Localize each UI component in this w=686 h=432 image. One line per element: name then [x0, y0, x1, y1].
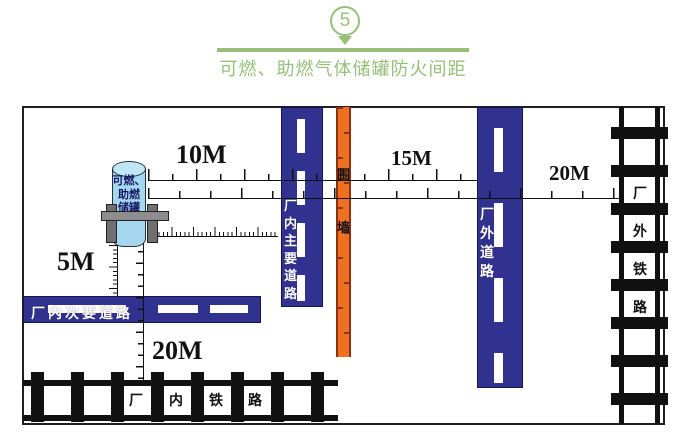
measure-label-20m-bottom: 20M [152, 336, 203, 366]
rail-inner-label-char: 厂 [128, 390, 144, 410]
rail-outer-rail [655, 107, 660, 424]
rail-inner-rail [23, 415, 338, 421]
lane-dashes [297, 119, 305, 301]
measure-label-10m: 10M [176, 140, 227, 170]
measure-label-20m-right: 20M [549, 161, 590, 186]
diagram-page: 5 可燃、助燃气体储罐防火间距 厂内次要道路 厂 内 主 要 道 路 围 墙 厂… [0, 0, 686, 432]
rail-outer-label-char: 厂 [630, 183, 650, 203]
badge-pointer-icon [338, 36, 352, 45]
road-secondary-label: 厂内次要道路 [31, 303, 133, 323]
rail-outer-label-char: 路 [630, 297, 650, 317]
wall-label-char: 墙 [336, 217, 351, 236]
section-number: 5 [340, 10, 351, 31]
ruler-20m-right [148, 188, 620, 199]
tank-support-leg [106, 204, 117, 243]
rail-inner-label-char: 铁 [208, 390, 224, 410]
rail-inner-label-char: 路 [247, 390, 263, 410]
measure-label-15m: 15M [391, 146, 432, 171]
lane-dash [158, 305, 198, 313]
section-number-badge: 5 [330, 6, 360, 36]
road-main-label: 厂 内 主 要 道 路 [283, 197, 298, 303]
title-underline [217, 48, 469, 52]
diagram-title: 可燃、助燃气体储罐防火间距 [180, 55, 506, 81]
ruler-20m-vertical [136, 228, 144, 380]
ruler-5m-vertical [109, 245, 118, 296]
ruler-dense-horizontal [150, 227, 278, 237]
tank-support-bar [101, 211, 169, 221]
tank-support-leg [147, 204, 158, 243]
rail-inner-rail [23, 380, 338, 386]
lane-dashes [494, 128, 503, 383]
rail-outer-rail [619, 107, 624, 424]
rail-inner-label-char: 内 [168, 390, 184, 410]
rail-outer-label-char: 外 [630, 221, 650, 241]
rail-outer-label-char: 铁 [630, 259, 650, 279]
road-outer-label: 厂 外 道 路 [479, 206, 495, 282]
lane-dash [210, 305, 248, 313]
measure-label-5m: 5M [57, 247, 95, 277]
